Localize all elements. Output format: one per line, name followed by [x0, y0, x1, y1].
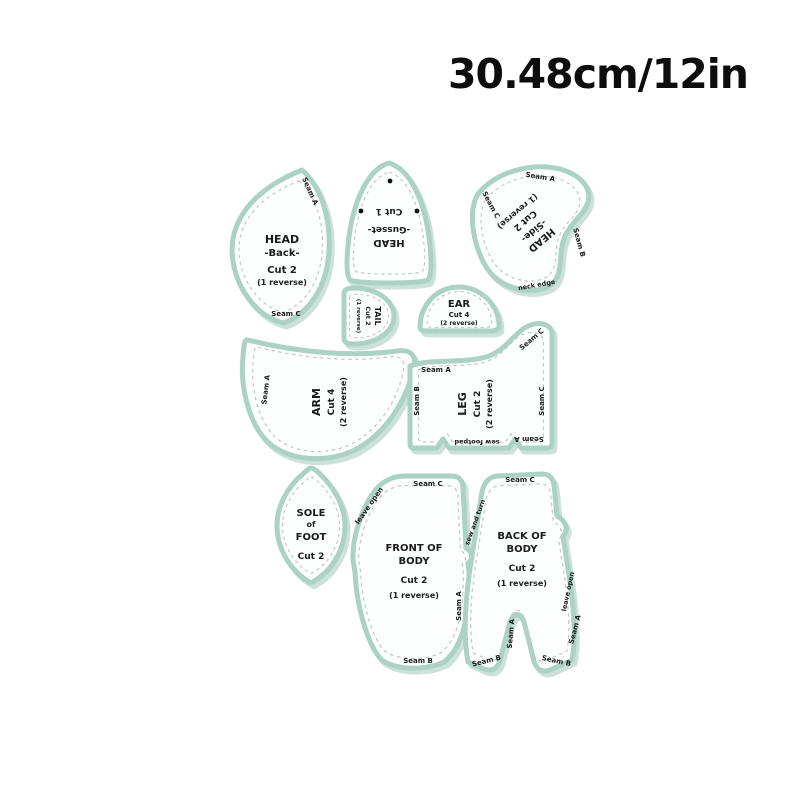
- back-body-label: BACK OF: [497, 531, 546, 542]
- pattern-piece-back-body: BACK OF BODY Cut 2 (1 reverse) Seam C se…: [463, 474, 583, 671]
- front-body-label: BODY: [399, 556, 431, 567]
- front-body-label: FRONT OF: [385, 543, 442, 554]
- leg-seam-label: Seam B: [413, 386, 421, 416]
- front-body-label: Cut 2: [401, 576, 428, 586]
- gusset-mark-dot: [415, 209, 420, 214]
- head-side-seam-label: Seam B: [571, 227, 586, 258]
- pattern-piece-head-gusset: HEAD -Gusset- Cut 1: [347, 163, 431, 283]
- front-body-seam-label: Seam B: [403, 657, 433, 665]
- pattern-sheet: HEAD -Back- Cut 2 (1 reverse) Seam A Sea…: [0, 0, 800, 800]
- leg-seam-label: Seam A: [514, 435, 544, 443]
- ear-label: EAR: [448, 299, 471, 310]
- arm-label: Cut 4: [327, 389, 337, 416]
- pattern-piece-head-side: HEAD -Side- Cut 2 (1 reverse) Seam A Sea…: [472, 167, 588, 292]
- back-body-label: (1 reverse): [497, 579, 547, 588]
- head-gusset-label: HEAD: [373, 237, 404, 248]
- front-body-label: (1 reverse): [389, 591, 439, 600]
- gusset-mark-dot: [359, 209, 364, 214]
- head-gusset-label: Cut 1: [376, 206, 403, 216]
- tail-label: Cut 2: [364, 306, 372, 325]
- arm-label: (2 reverse): [339, 377, 348, 427]
- tail-label: (1 reverse): [355, 299, 361, 334]
- leg-label: LEG: [456, 392, 469, 416]
- leg-note-label: sew footpad: [454, 438, 499, 446]
- leg-seam-label: Seam A: [421, 366, 451, 374]
- pattern-piece-sole: SOLE of FOOT Cut 2: [277, 468, 345, 583]
- back-body-seam-label: Seam A: [506, 618, 517, 649]
- pattern-piece-head-back: HEAD -Back- Cut 2 (1 reverse) Seam A Sea…: [232, 170, 329, 323]
- back-body-label: Cut 2: [509, 564, 536, 574]
- pattern-piece-tail: TAIL Cut 2 (1 reverse): [344, 288, 394, 344]
- pattern-piece-arm: ARM Cut 4 (2 reverse) Seam A: [242, 340, 414, 459]
- leg-seam-label: Seam C: [538, 386, 546, 415]
- head-back-label: -Back-: [264, 248, 299, 259]
- head-gusset-label: -Gusset-: [368, 224, 411, 234]
- back-body-seam-label: Seam C: [505, 476, 534, 484]
- front-body-seam-label: Seam A: [455, 591, 463, 621]
- product-image: 30.48cm/12in HEAD -Back- Cut 2 (1 revers…: [0, 0, 800, 800]
- sole-label: SOLE: [297, 508, 326, 519]
- sole-label: Cut 2: [298, 552, 325, 562]
- ear-label: Cut 4: [449, 311, 470, 319]
- leg-label: (2 reverse): [485, 379, 494, 429]
- sole-label: FOOT: [296, 532, 327, 543]
- sole-label: of: [307, 520, 316, 529]
- head-back-label: Cut 2: [267, 265, 297, 276]
- pattern-piece-front-body: FRONT OF BODY Cut 2 (1 reverse) Seam C l…: [353, 476, 472, 668]
- head-back-seam-label: Seam C: [271, 310, 300, 318]
- head-back-label: (1 reverse): [257, 278, 307, 287]
- ear-label: (2 reverse): [440, 320, 478, 327]
- leg-label: Cut 2: [473, 391, 483, 418]
- arm-label: ARM: [310, 388, 323, 416]
- back-body-label: BODY: [507, 544, 539, 555]
- pattern-piece-leg: LEG Cut 2 (2 reverse) Seam A Seam B Seam…: [410, 324, 552, 448]
- pattern-piece-ear: EAR Cut 4 (2 reverse): [420, 287, 499, 331]
- front-body-seam-label: Seam C: [413, 480, 442, 488]
- head-back-label: HEAD: [265, 233, 299, 246]
- tail-label: TAIL: [373, 306, 382, 325]
- gusset-mark-dot: [388, 179, 393, 184]
